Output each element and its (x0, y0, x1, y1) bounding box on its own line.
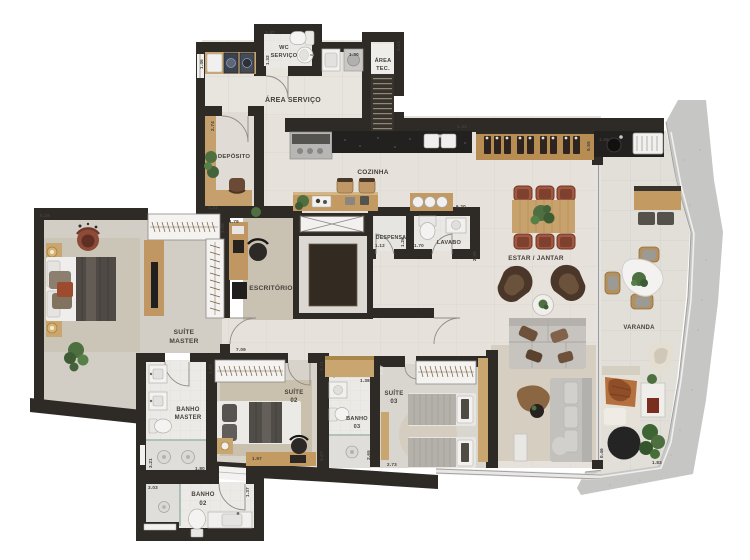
svg-text:3.09: 3.09 (220, 223, 225, 233)
svg-text:DEPÓSITO: DEPÓSITO (218, 152, 251, 160)
svg-text:LAVABO: LAVABO (437, 240, 462, 246)
svg-text:1.33: 1.33 (208, 205, 218, 210)
svg-text:1.79: 1.79 (229, 219, 239, 224)
svg-text:1.26: 1.26 (400, 237, 405, 247)
svg-text:MASTER: MASTER (175, 415, 202, 421)
svg-text:9.55: 9.55 (586, 141, 591, 151)
svg-text:3.07: 3.07 (319, 451, 324, 461)
svg-text:ÁREA: ÁREA (375, 57, 392, 64)
svg-text:03: 03 (354, 424, 361, 430)
svg-text:1.80: 1.80 (195, 466, 205, 471)
svg-text:VARANDA: VARANDA (623, 325, 655, 331)
svg-text:2.73: 2.73 (387, 462, 397, 467)
svg-text:1.97: 1.97 (252, 456, 262, 461)
svg-text:BANHO: BANHO (176, 407, 199, 413)
svg-text:SUÍTE: SUÍTE (174, 327, 195, 336)
svg-text:1.47: 1.47 (265, 30, 275, 35)
svg-text:1.33: 1.33 (457, 124, 467, 129)
svg-text:2.08: 2.08 (472, 251, 477, 261)
svg-text:3.03: 3.03 (148, 485, 158, 490)
svg-text:2.74: 2.74 (210, 121, 215, 131)
svg-text:2.13: 2.13 (396, 41, 401, 51)
svg-text:02: 02 (290, 398, 298, 404)
svg-text:ÁREA SERVIÇO: ÁREA SERVIÇO (265, 95, 321, 104)
svg-text:1.12: 1.12 (375, 243, 385, 248)
svg-text:COZINHA: COZINHA (357, 169, 388, 176)
svg-text:ESCRITÓRIO: ESCRITÓRIO (249, 283, 293, 292)
svg-text:5.28: 5.28 (40, 213, 50, 218)
svg-text:WC: WC (279, 45, 289, 51)
svg-text:3.07: 3.07 (379, 365, 384, 375)
svg-text:1.32: 1.32 (265, 55, 270, 65)
svg-text:2.65: 2.65 (366, 450, 371, 460)
svg-text:0.46: 0.46 (599, 448, 604, 458)
svg-text:1.08: 1.08 (599, 137, 609, 142)
svg-text:1.46: 1.46 (199, 59, 204, 69)
svg-text:3.21: 3.21 (148, 458, 153, 468)
svg-text:03: 03 (390, 399, 398, 405)
svg-text:SERVIÇO: SERVIÇO (271, 53, 298, 59)
svg-text:1.70: 1.70 (414, 243, 424, 248)
svg-text:6.20: 6.20 (456, 204, 466, 209)
svg-text:ESTAR / JANTAR: ESTAR / JANTAR (508, 255, 564, 262)
svg-text:7.09: 7.09 (236, 347, 246, 352)
svg-text:3.11: 3.11 (319, 361, 324, 371)
svg-text:SUÍTE: SUÍTE (385, 389, 404, 397)
svg-text:BANHO: BANHO (346, 416, 368, 422)
svg-text:MASTER: MASTER (169, 338, 198, 345)
svg-text:1.83: 1.83 (652, 460, 662, 465)
svg-text:BANHO: BANHO (191, 492, 214, 498)
svg-text:1.37: 1.37 (245, 487, 250, 497)
svg-text:1.37: 1.37 (208, 364, 213, 374)
svg-text:1.30: 1.30 (349, 52, 359, 57)
svg-text:TEC.: TEC. (376, 66, 390, 72)
svg-text:SUÍTE: SUÍTE (285, 388, 304, 396)
svg-text:02: 02 (199, 501, 207, 507)
svg-text:1.38: 1.38 (360, 378, 370, 383)
